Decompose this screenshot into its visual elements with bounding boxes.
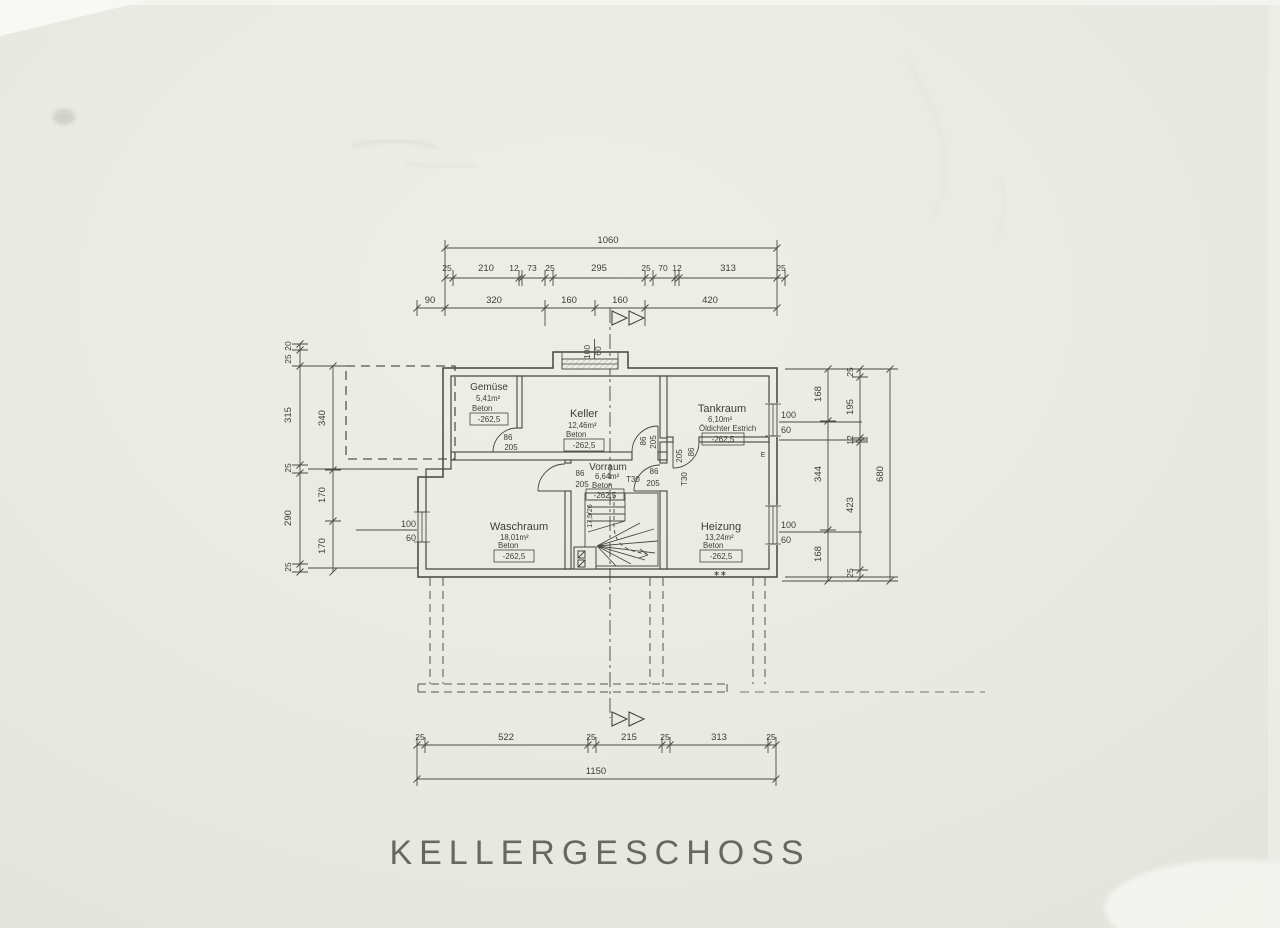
- door-size-label: 205: [646, 479, 660, 488]
- door-size-label: 205: [649, 435, 658, 449]
- dim-label: 25: [586, 732, 596, 742]
- window-size-label: 100: [781, 520, 796, 530]
- room-name: Waschraum: [490, 521, 548, 533]
- room-floor: Öldichter Estrich: [699, 424, 756, 433]
- dim-label: 680: [875, 466, 886, 482]
- dim-label: 25: [283, 354, 293, 364]
- fire-rating-label: T30: [626, 475, 640, 484]
- dim-label: 25: [415, 732, 425, 742]
- room-level: -262,5: [710, 552, 733, 561]
- window-size-label: 60: [781, 535, 791, 545]
- window-size-label: 60: [406, 533, 416, 543]
- window-size-label: 100: [401, 519, 416, 529]
- dim-label: 160: [612, 295, 628, 306]
- door-size-label: 205: [675, 449, 684, 463]
- dim-label: 73: [527, 263, 537, 273]
- dim-label: 420: [702, 295, 718, 306]
- room-level: -262,5: [594, 491, 617, 500]
- door-size-label: 86: [650, 467, 659, 476]
- door-size-label: 86: [687, 447, 696, 456]
- dim-label: 1060: [597, 235, 618, 246]
- room-area: 6,10m²: [708, 415, 733, 424]
- dim-label: 320: [486, 295, 502, 306]
- dim-label: 160: [561, 295, 577, 306]
- dim-label: 25: [845, 367, 855, 377]
- dim-label: 25: [283, 463, 293, 473]
- room-name: Heizung: [701, 521, 741, 533]
- room-name: Gemüse: [470, 382, 508, 393]
- dim-label: 522: [498, 732, 514, 743]
- stair-dimension-label: 17,5/26: [587, 504, 594, 527]
- dim-label: 90: [425, 295, 436, 306]
- dim-label: 170: [317, 538, 328, 554]
- floorplan-drawing: 1060 25 210 12 73 25 295 25 70 12 313 25…: [0, 0, 1280, 928]
- room-level: -262,5: [503, 552, 526, 561]
- dim-label: 313: [711, 732, 727, 743]
- page-title: KELLERGESCHOSS: [389, 834, 810, 872]
- dim-label: 1150: [586, 766, 606, 777]
- room-level: -262,5: [573, 441, 596, 450]
- room-floor: Beton: [703, 541, 723, 550]
- paper-background: [0, 0, 1280, 928]
- heizung-floor-marks: ∗∗: [713, 569, 726, 578]
- dim-label: 168: [813, 546, 824, 562]
- window-size-label: 100: [582, 345, 592, 359]
- room-name: Keller: [570, 408, 598, 420]
- dim-label: 25: [660, 732, 670, 742]
- dim-label: 290: [283, 510, 294, 526]
- dim-label: 25: [845, 568, 855, 578]
- chimney-icon: [574, 547, 596, 569]
- dim-label: 20: [283, 341, 293, 351]
- dim-label: 25: [766, 732, 776, 742]
- dim-label: 25: [776, 263, 786, 273]
- room-area: 12,46m²: [568, 421, 597, 430]
- dim-label: 313: [720, 263, 736, 274]
- room-name: Tankraum: [698, 403, 746, 415]
- window-size-label: 100: [781, 410, 796, 420]
- scanned-floorplan-page: 1060 25 210 12 73 25 295 25 70 12 313 25…: [0, 0, 1280, 928]
- dim-label: 344: [813, 466, 824, 482]
- dim-label: 195: [845, 399, 856, 415]
- electric-marker: E: [761, 452, 766, 459]
- door-size-label: 86: [576, 469, 585, 478]
- dim-label: 12: [509, 263, 519, 273]
- dim-label: 25: [442, 263, 452, 273]
- door-size-label: 205: [575, 480, 589, 489]
- dim-label: 12: [672, 263, 682, 273]
- room-floor: Beton: [472, 404, 492, 413]
- dim-label: 12: [845, 435, 855, 445]
- scan-smudge: [53, 109, 75, 125]
- dim-label: 210: [478, 263, 494, 274]
- dim-label: 423: [845, 497, 856, 513]
- room-floor: Beton: [566, 430, 586, 439]
- room-level: -262,5: [712, 435, 735, 444]
- door-size-label: 205: [504, 443, 518, 452]
- fire-rating-label: T30: [680, 472, 689, 486]
- room-area: 5,41m²: [476, 394, 501, 403]
- dim-label: 340: [317, 410, 328, 426]
- dim-label: 25: [283, 562, 293, 572]
- door-size-label: 86: [639, 436, 648, 445]
- window-size-label: 60: [593, 346, 603, 356]
- dim-label: 170: [317, 487, 328, 503]
- dim-label: 295: [591, 263, 607, 274]
- dim-label: 70: [658, 263, 668, 273]
- window-size-label: 60: [781, 425, 791, 435]
- dim-label: 215: [621, 732, 637, 743]
- dim-label: 168: [813, 386, 824, 402]
- room-level: -262,5: [478, 415, 501, 424]
- room-floor: Beton: [498, 541, 518, 550]
- dim-label: 25: [641, 263, 651, 273]
- room-area: 6,64m²: [595, 472, 620, 481]
- dim-label: 25: [545, 263, 555, 273]
- dim-label: 315: [283, 407, 294, 423]
- door-size-label: 86: [504, 433, 513, 442]
